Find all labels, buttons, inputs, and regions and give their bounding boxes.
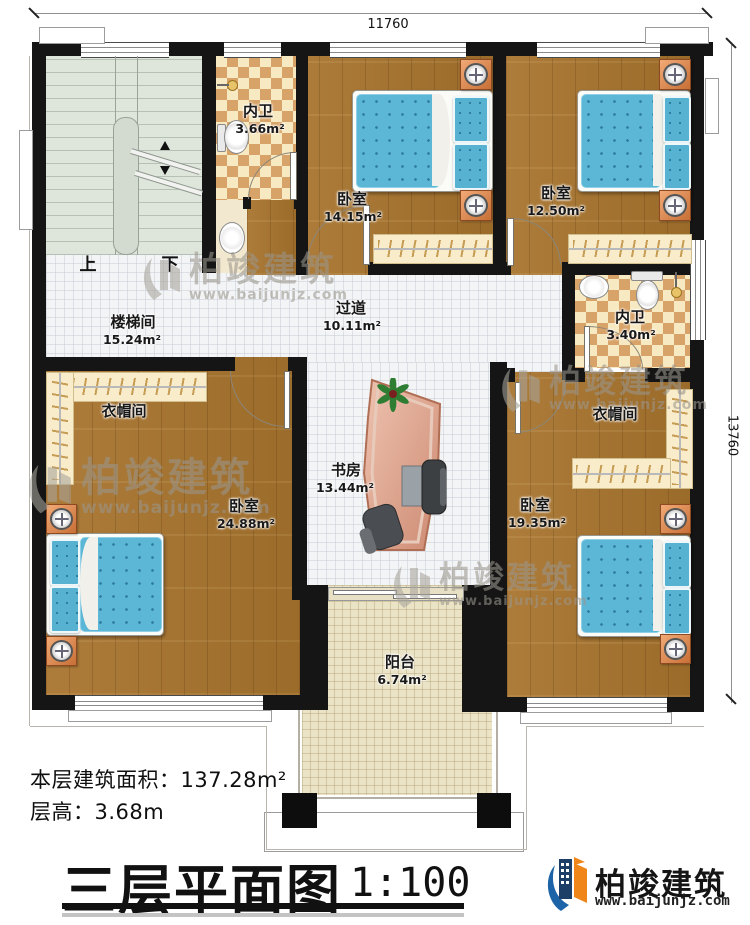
wall-segment: [288, 357, 307, 371]
lamp-icon: [663, 63, 687, 86]
stair-center-rail: [113, 117, 139, 255]
stair-direction-arrow: [160, 166, 170, 175]
stair-direction-arrow: [160, 141, 170, 150]
dimension-line-right: [731, 45, 732, 703]
room-label-stairhall: 楼梯间: [110, 315, 155, 331]
door-leaf: [284, 371, 290, 429]
window-sill: [705, 78, 719, 134]
study-desk-group: [352, 378, 452, 556]
window-sill: [520, 712, 672, 724]
room-label-bedroom2: 卧室: [541, 186, 571, 202]
room-label-bathroom2: 内卫: [615, 310, 645, 326]
stair-up-label: 上: [80, 250, 97, 275]
story-height-line: 层高：3.68m: [30, 796, 164, 826]
balcony-sliding-door: [328, 587, 464, 601]
nightstand: [659, 59, 691, 90]
dimension-right-value: 13760: [725, 401, 740, 471]
niche-floor: [247, 200, 296, 275]
window: [330, 42, 466, 58]
window: [81, 42, 169, 58]
pillar: [477, 793, 511, 828]
wall-segment: [202, 56, 216, 273]
wall-segment: [493, 56, 506, 275]
room-area-balcony: 6.74m²: [377, 672, 426, 687]
wardrobe-rack: [373, 234, 493, 264]
page-title-scale: 1:100: [350, 860, 470, 906]
wall-segment: [660, 42, 713, 56]
story-height-label: 层高：: [30, 800, 95, 824]
wall-segment: [300, 585, 328, 710]
window-sill: [68, 710, 272, 722]
sink-icon: [579, 275, 609, 299]
window: [224, 42, 281, 58]
dimension-top-value: 11760: [367, 17, 408, 32]
room-area-bedroom2: 12.50m²: [527, 203, 585, 218]
brand-website: www.baijunjz.com: [595, 893, 730, 909]
wardrobe-rack: [568, 234, 692, 264]
door-leaf: [584, 326, 590, 372]
dimension-line-top: [34, 13, 708, 14]
brand-logo-icon: [545, 855, 591, 913]
monitor-base: [440, 468, 446, 506]
wall-segment: [169, 42, 224, 56]
wall-segment: [462, 697, 527, 712]
nightstand: [660, 634, 691, 664]
wall-segment: [667, 697, 704, 712]
wall-segment: [565, 368, 585, 382]
room-label-cloakroom-left: 衣帽间: [101, 404, 146, 420]
wall-segment: [466, 42, 537, 56]
window-sill: [19, 130, 33, 230]
lamp-icon: [464, 194, 488, 217]
bed-pillow: [453, 96, 489, 143]
sliding-door-leaf: [333, 590, 397, 595]
room-area-bedroom1: 14.15m²: [324, 209, 382, 224]
wall-segment: [292, 357, 307, 600]
room-area-bathroom2: 3.40m²: [606, 327, 655, 342]
title-underline-shadow: [62, 913, 464, 917]
window-sill: [645, 27, 709, 44]
nightstand: [659, 190, 691, 221]
nightstand: [460, 190, 492, 221]
wall-segment: [562, 268, 575, 380]
story-height-value: 3.68m: [95, 800, 165, 824]
room-area-bedroom4: 19.35m²: [508, 515, 566, 530]
sliding-door-leaf: [393, 594, 457, 599]
lamp-icon: [50, 640, 73, 662]
lamp-icon: [664, 638, 687, 660]
frame-line: [30, 726, 266, 727]
monitor-screen: [402, 466, 424, 506]
floor-area-label: 本层建筑面积：: [30, 768, 181, 792]
wall-segment: [296, 56, 308, 275]
bed-mattress: [581, 94, 661, 188]
stair-down-label: 下: [162, 250, 179, 275]
room-area-corridor: 10.11m²: [323, 318, 381, 333]
wall-segment: [490, 362, 507, 710]
wall-segment: [32, 357, 235, 371]
wall-segment: [462, 585, 490, 710]
lamp-icon: [50, 508, 73, 530]
door-leaf: [515, 382, 521, 434]
door-leaf: [507, 218, 514, 266]
door-leaf: [290, 152, 297, 200]
frame-line: [526, 726, 527, 850]
wall-segment: [32, 695, 75, 710]
sink-icon: [219, 222, 245, 254]
lamp-icon: [663, 194, 687, 217]
floor-plan-page: 上 下: [0, 0, 750, 925]
floor-area-line: 本层建筑面积：137.28m²: [30, 764, 287, 794]
bed-mattress: [581, 539, 661, 633]
window: [690, 240, 706, 340]
lamp-icon: [664, 508, 687, 530]
wall-segment: [32, 42, 46, 710]
room-label-bedroom3: 卧室: [229, 499, 259, 515]
bed-pillow: [50, 539, 80, 586]
nightstand: [660, 504, 691, 534]
window-sill: [39, 27, 105, 44]
wall-segment: [281, 42, 330, 56]
room-area-study: 13.44m²: [316, 480, 374, 495]
bed-pillow: [663, 143, 691, 190]
nightstand: [46, 504, 77, 534]
bed-pillow: [663, 541, 691, 588]
lamp-icon: [464, 63, 488, 86]
pillar: [282, 793, 317, 828]
wall-segment: [690, 42, 704, 240]
bed-sheet: [80, 537, 98, 630]
bed-pillow: [663, 96, 691, 143]
room-label-balcony: 阳台: [385, 655, 415, 671]
nightstand: [46, 636, 77, 666]
room-label-study: 书房: [331, 463, 361, 479]
wardrobe-rack: [68, 372, 207, 402]
room-area-bedroom3: 24.88m²: [217, 516, 275, 531]
balcony-railing: [298, 705, 498, 799]
room-area-bathroom1: 3.66m²: [235, 121, 284, 136]
wall-segment: [645, 368, 704, 382]
shower-arm: [675, 272, 677, 288]
title-underline: [62, 903, 464, 909]
frame-line: [526, 726, 704, 727]
toilet-icon: [636, 280, 659, 310]
floor-area-value: 137.28m²: [181, 768, 287, 792]
room-label-bedroom1: 卧室: [337, 192, 367, 208]
room-label-bedroom4: 卧室: [520, 498, 550, 514]
nightstand: [460, 59, 492, 90]
shower-arm: [217, 84, 229, 86]
wall-segment: [263, 695, 327, 710]
wardrobe-rack: [572, 458, 671, 489]
bed-pillow: [50, 586, 80, 633]
room-label-corridor: 过道: [336, 301, 366, 317]
wardrobe-rack: [46, 372, 74, 485]
bed-pillow: [453, 143, 489, 190]
shower-icon: [671, 287, 682, 298]
room-area-stairhall: 15.24m²: [103, 332, 161, 347]
bed-pillow: [663, 588, 691, 635]
room-label-cloakroom-right: 衣帽间: [592, 407, 637, 423]
window: [537, 42, 660, 58]
bed-mattress: [356, 94, 440, 188]
room-label-bathroom1: 内卫: [243, 104, 273, 120]
wall-segment: [507, 368, 515, 382]
